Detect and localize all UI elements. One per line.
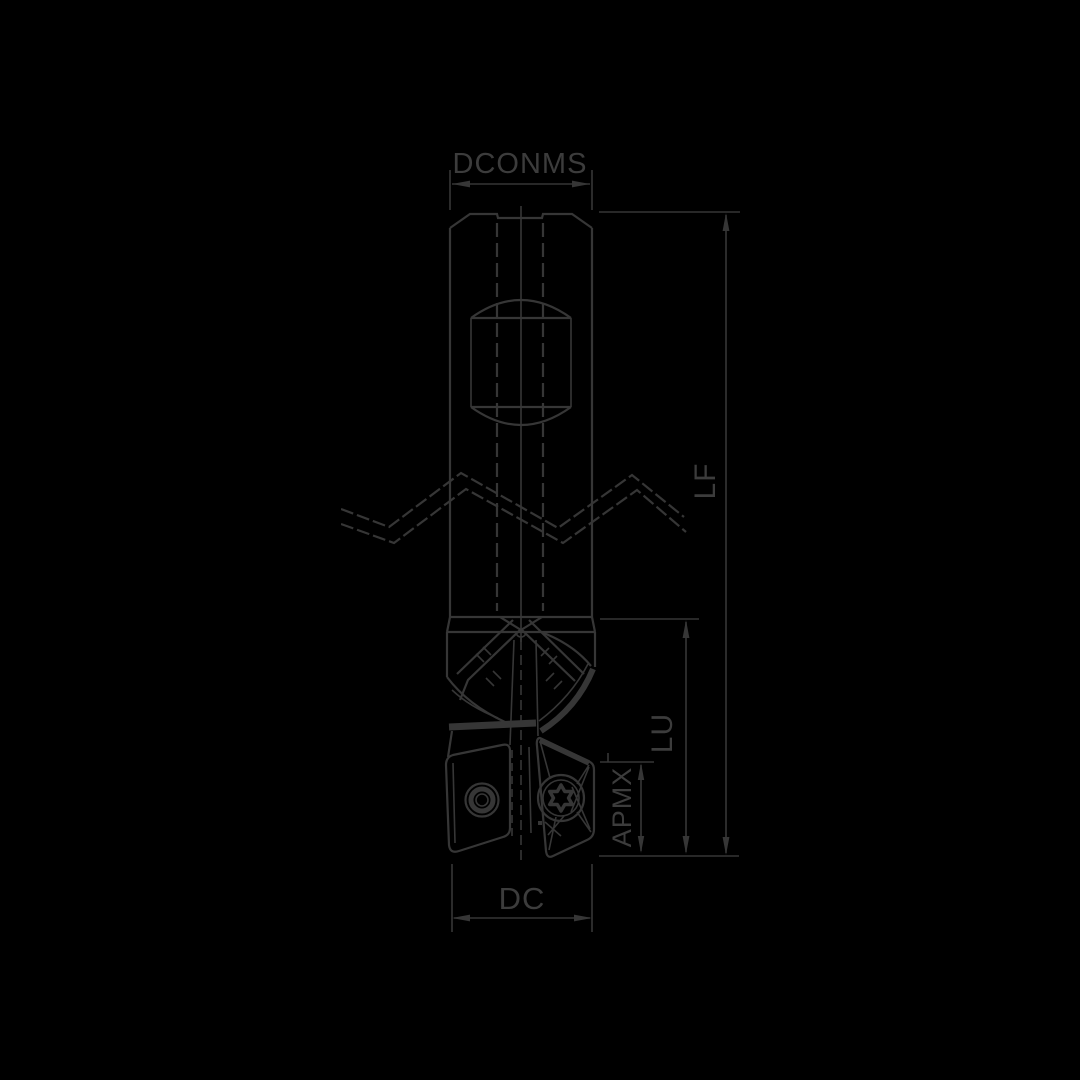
break-lines bbox=[341, 473, 686, 543]
drawing-canvas: DCONMS LF LU bbox=[0, 0, 1080, 1080]
label-lf: LF bbox=[689, 462, 722, 499]
insert-screw bbox=[466, 784, 499, 817]
dim-lf: LF bbox=[599, 212, 740, 855]
label-apmx: APMX bbox=[607, 767, 637, 848]
end-mill-drawing: DCONMS LF LU bbox=[341, 147, 740, 933]
coolant-dot bbox=[538, 821, 542, 825]
dim-dconms: DCONMS bbox=[450, 148, 592, 210]
arrowhead bbox=[452, 915, 470, 922]
label-dc: DC bbox=[499, 881, 546, 916]
arrowhead bbox=[683, 836, 690, 854]
dim-apmx: APMX bbox=[600, 753, 654, 853]
arrowhead bbox=[572, 181, 590, 188]
pocket-edge-bar bbox=[449, 723, 536, 727]
arrowhead bbox=[683, 620, 690, 638]
dim-dc: DC bbox=[452, 864, 592, 932]
arrowhead bbox=[723, 213, 730, 231]
arrowhead bbox=[638, 836, 644, 853]
label-dconms: DCONMS bbox=[453, 148, 588, 180]
torx-star bbox=[550, 785, 573, 811]
arrowhead bbox=[452, 181, 470, 188]
arrowhead bbox=[638, 763, 644, 780]
shank bbox=[447, 206, 595, 861]
label-lu: LU bbox=[646, 713, 679, 753]
flute-scallop bbox=[447, 677, 505, 722]
arrowhead bbox=[723, 837, 730, 855]
arrowhead bbox=[574, 915, 592, 922]
left-insert bbox=[446, 745, 512, 852]
technical-drawing: DCONMS LF LU bbox=[341, 147, 740, 933]
right-insert bbox=[529, 738, 594, 857]
